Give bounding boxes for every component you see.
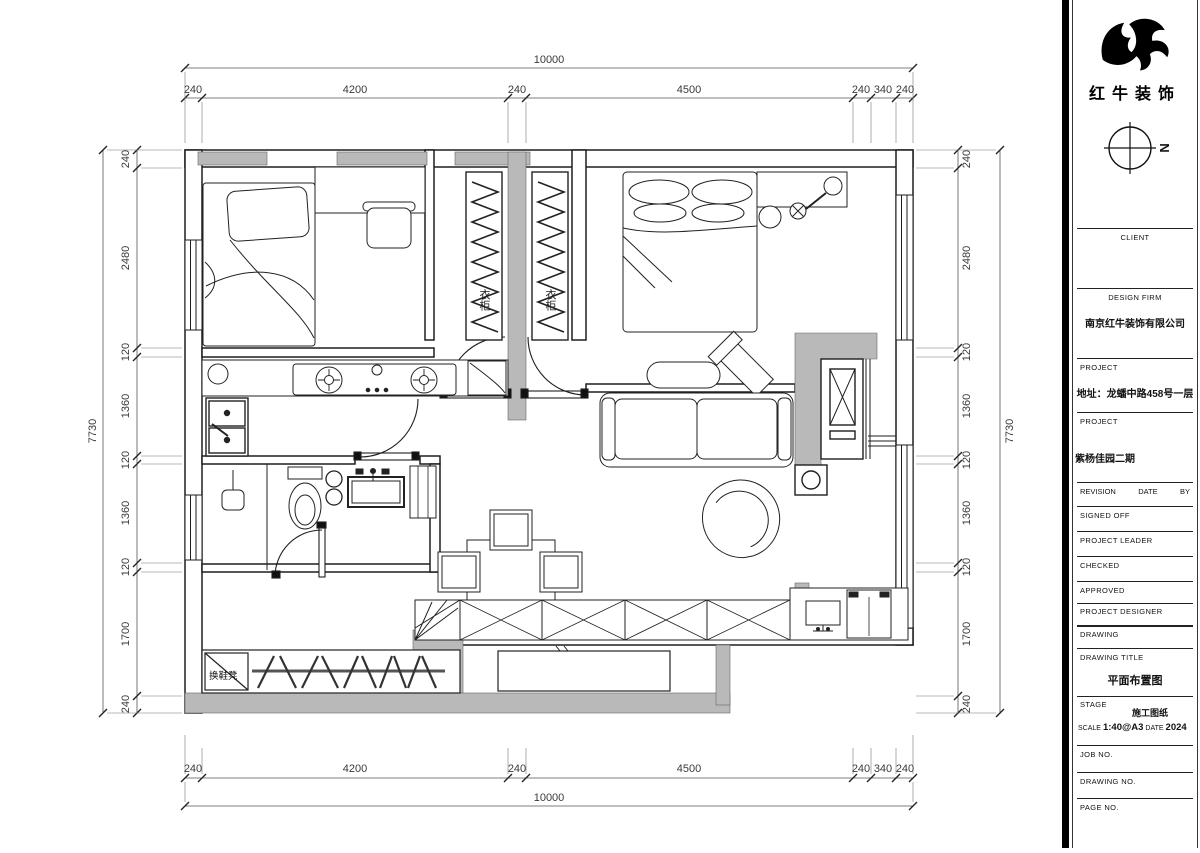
svg-text:240: 240 bbox=[120, 695, 132, 713]
kitchen-sink-round bbox=[208, 364, 228, 384]
company-logo bbox=[1073, 12, 1197, 78]
project-name: 紫杨佳园二期 bbox=[1073, 450, 1197, 465]
double-bed bbox=[623, 172, 757, 332]
north-letter: N bbox=[1157, 143, 1172, 152]
drawing-sheet: 10000 240 4200 240 4500 240 340 240 1000… bbox=[0, 0, 1200, 848]
kitchen bbox=[202, 360, 508, 456]
svg-text:2480: 2480 bbox=[120, 246, 132, 270]
svg-text:1360: 1360 bbox=[120, 394, 132, 418]
bathroom bbox=[222, 464, 436, 570]
appliance bbox=[847, 590, 891, 638]
lounge-chair bbox=[687, 464, 795, 573]
approved-label: APPROVED bbox=[1073, 586, 1197, 595]
project-label-1: PROJECT bbox=[1073, 363, 1197, 372]
title-block-frame: 红牛装饰 N CLIENT DESIGN FIRM 南京红牛装饰有限公司 PRO… bbox=[1072, 0, 1198, 848]
tv-cabinet bbox=[790, 588, 908, 640]
page-no-label: PAGE NO. bbox=[1073, 803, 1197, 812]
svg-text:120: 120 bbox=[961, 558, 973, 576]
drawing-label: DRAWING bbox=[1073, 630, 1197, 639]
company-name: 红牛装饰 bbox=[1073, 80, 1197, 104]
corner-cabinet bbox=[468, 361, 506, 395]
project-leader-label: PROJECT LEADER bbox=[1073, 536, 1197, 545]
sofa bbox=[600, 393, 793, 467]
svg-text:1360: 1360 bbox=[961, 394, 973, 418]
project-label-2: PROJECT bbox=[1073, 417, 1197, 426]
dining-chair-left bbox=[438, 552, 480, 592]
design-firm-value: 南京红牛装饰有限公司 bbox=[1073, 315, 1197, 330]
central-column bbox=[508, 152, 526, 420]
svg-text:240: 240 bbox=[852, 763, 870, 775]
svg-text:1700: 1700 bbox=[961, 622, 973, 646]
svg-text:240: 240 bbox=[961, 695, 973, 713]
door-kitchen bbox=[354, 399, 419, 460]
svg-text:240: 240 bbox=[896, 763, 914, 775]
stage-value: 施工图纸 bbox=[1073, 706, 1197, 719]
svg-text:340: 340 bbox=[874, 84, 892, 96]
svg-text:120: 120 bbox=[961, 451, 973, 469]
entry bbox=[202, 646, 670, 693]
date-label-2: DATE bbox=[1145, 725, 1163, 732]
dining-set bbox=[438, 510, 582, 600]
client-label: CLIENT bbox=[1073, 233, 1197, 242]
meter-dial bbox=[802, 471, 820, 489]
svg-text:4500: 4500 bbox=[677, 84, 701, 96]
window-link bbox=[868, 436, 896, 446]
date-value: 2024 bbox=[1166, 722, 1187, 733]
design-firm-label: DESIGN FIRM bbox=[1073, 293, 1197, 302]
dining-chair-right bbox=[540, 552, 582, 592]
north-arrow: N bbox=[1073, 118, 1197, 178]
window-bathroom bbox=[185, 495, 202, 560]
toilet bbox=[288, 467, 322, 529]
ottoman bbox=[647, 362, 720, 388]
window-bedroom2 bbox=[185, 240, 202, 330]
stool bbox=[759, 206, 781, 228]
window-master bbox=[896, 195, 913, 340]
dim-left-overall: 7730 bbox=[87, 419, 99, 443]
nightstand bbox=[757, 172, 847, 228]
cabinet-row bbox=[415, 600, 790, 640]
svg-text:4500: 4500 bbox=[677, 763, 701, 775]
kitchen-stove bbox=[293, 364, 456, 395]
svg-text:120: 120 bbox=[120, 558, 132, 576]
kitchen-sink-unit bbox=[206, 398, 248, 456]
dim-bottom-overall: 10000 bbox=[534, 792, 565, 804]
svg-text:340: 340 bbox=[874, 763, 892, 775]
shower bbox=[222, 470, 244, 510]
drawing-title-label: DRAWING TITLE bbox=[1073, 653, 1197, 662]
svg-text:120: 120 bbox=[120, 343, 132, 361]
column-fill bbox=[337, 152, 427, 165]
wardrobe-left bbox=[466, 172, 502, 340]
svg-text:240: 240 bbox=[508, 84, 526, 96]
checked-label: CHECKED bbox=[1073, 561, 1197, 570]
svg-text:4200: 4200 bbox=[343, 763, 367, 775]
svg-text:1360: 1360 bbox=[961, 501, 973, 525]
bath-cabinet bbox=[410, 466, 436, 518]
job-no-label: JOB NO. bbox=[1073, 750, 1197, 759]
drawing-no-label: DRAWING NO. bbox=[1073, 777, 1197, 786]
svg-text:1360: 1360 bbox=[120, 501, 132, 525]
entry-exterior-wall bbox=[185, 693, 730, 713]
column-fill bbox=[198, 152, 267, 165]
svg-text:240: 240 bbox=[508, 763, 526, 775]
project-designer-label: PROJECT DESIGNER bbox=[1073, 607, 1197, 616]
vanity bbox=[348, 469, 404, 508]
scale-value: 1:40@A3 bbox=[1103, 722, 1143, 733]
wardrobe-right bbox=[532, 172, 568, 340]
svg-text:120: 120 bbox=[120, 451, 132, 469]
signed-off-label: SIGNED OFF bbox=[1073, 511, 1197, 520]
shoe-bench-label: 换鞋凳 bbox=[209, 670, 238, 682]
svg-text:2480: 2480 bbox=[961, 246, 973, 270]
floor-plan-svg: 10000 240 4200 240 4500 240 340 240 1000… bbox=[0, 0, 1060, 848]
desk-chair bbox=[363, 202, 415, 248]
single-bed bbox=[203, 183, 315, 346]
date-label: DATE bbox=[1138, 487, 1157, 496]
svg-text:240: 240 bbox=[852, 84, 870, 96]
svg-text:240: 240 bbox=[120, 150, 132, 168]
tv bbox=[806, 601, 840, 625]
svg-text:4200: 4200 bbox=[343, 84, 367, 96]
door-master bbox=[521, 337, 588, 398]
dining-chair-top bbox=[490, 510, 532, 550]
project-address: 地址：龙蟠中路458号一层 bbox=[1073, 385, 1197, 400]
washer-canisters bbox=[326, 471, 342, 505]
bedroom2-furniture bbox=[203, 167, 425, 346]
svg-text:240: 240 bbox=[184, 763, 202, 775]
by-label: BY bbox=[1180, 487, 1190, 496]
title-block: 红牛装饰 N CLIENT DESIGN FIRM 南京红牛装饰有限公司 PRO… bbox=[1062, 0, 1199, 848]
dim-top-overall: 10000 bbox=[534, 54, 565, 66]
svg-text:240: 240 bbox=[184, 84, 202, 96]
dim-right-overall: 7730 bbox=[1004, 419, 1016, 443]
drawing-title-value: 平面布置图 bbox=[1073, 672, 1197, 688]
wardrobe-right-label: 衣柜 bbox=[544, 288, 557, 312]
wardrobe-left-label: 衣柜 bbox=[478, 288, 491, 312]
svg-text:1700: 1700 bbox=[120, 622, 132, 646]
svg-text:240: 240 bbox=[961, 150, 973, 168]
wall-stub bbox=[716, 645, 730, 705]
svg-text:120: 120 bbox=[961, 343, 973, 361]
entry-cabinet bbox=[498, 651, 670, 691]
revision-label: REVISION bbox=[1080, 487, 1116, 496]
svg-text:240: 240 bbox=[896, 84, 914, 96]
scale-label: SCALE bbox=[1078, 725, 1101, 732]
